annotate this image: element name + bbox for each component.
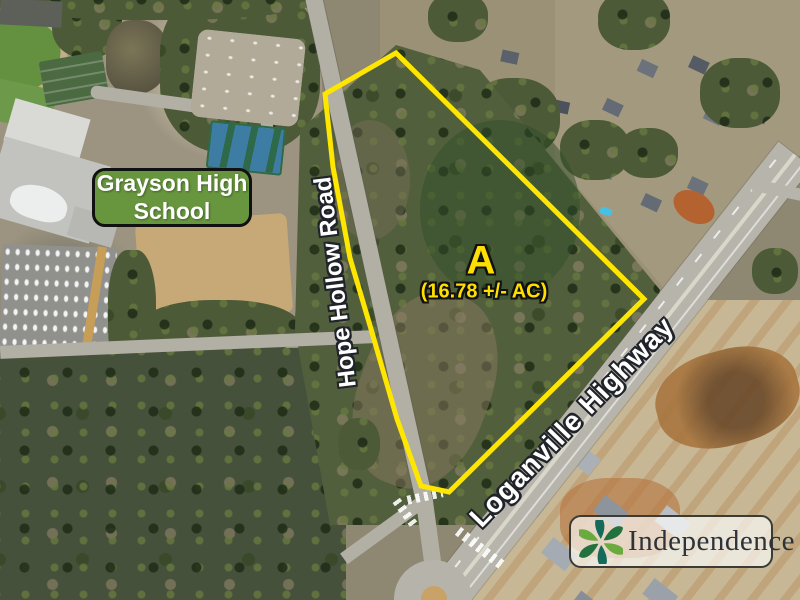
parcel-id-label: A <box>467 239 496 284</box>
aerial-site-map: Grayson High School Hope Hollow Road Log… <box>0 0 800 600</box>
parcel-outline <box>0 0 800 600</box>
school-label: Grayson High School <box>92 168 252 227</box>
school-label-text: Grayson High School <box>95 170 249 224</box>
developer-logo: Independence <box>569 515 773 568</box>
parcel-acreage-label: (16.78 +/- AC) <box>421 281 548 304</box>
leaf-pinwheel-icon <box>579 520 623 564</box>
developer-logo-text: Independence <box>628 525 795 558</box>
